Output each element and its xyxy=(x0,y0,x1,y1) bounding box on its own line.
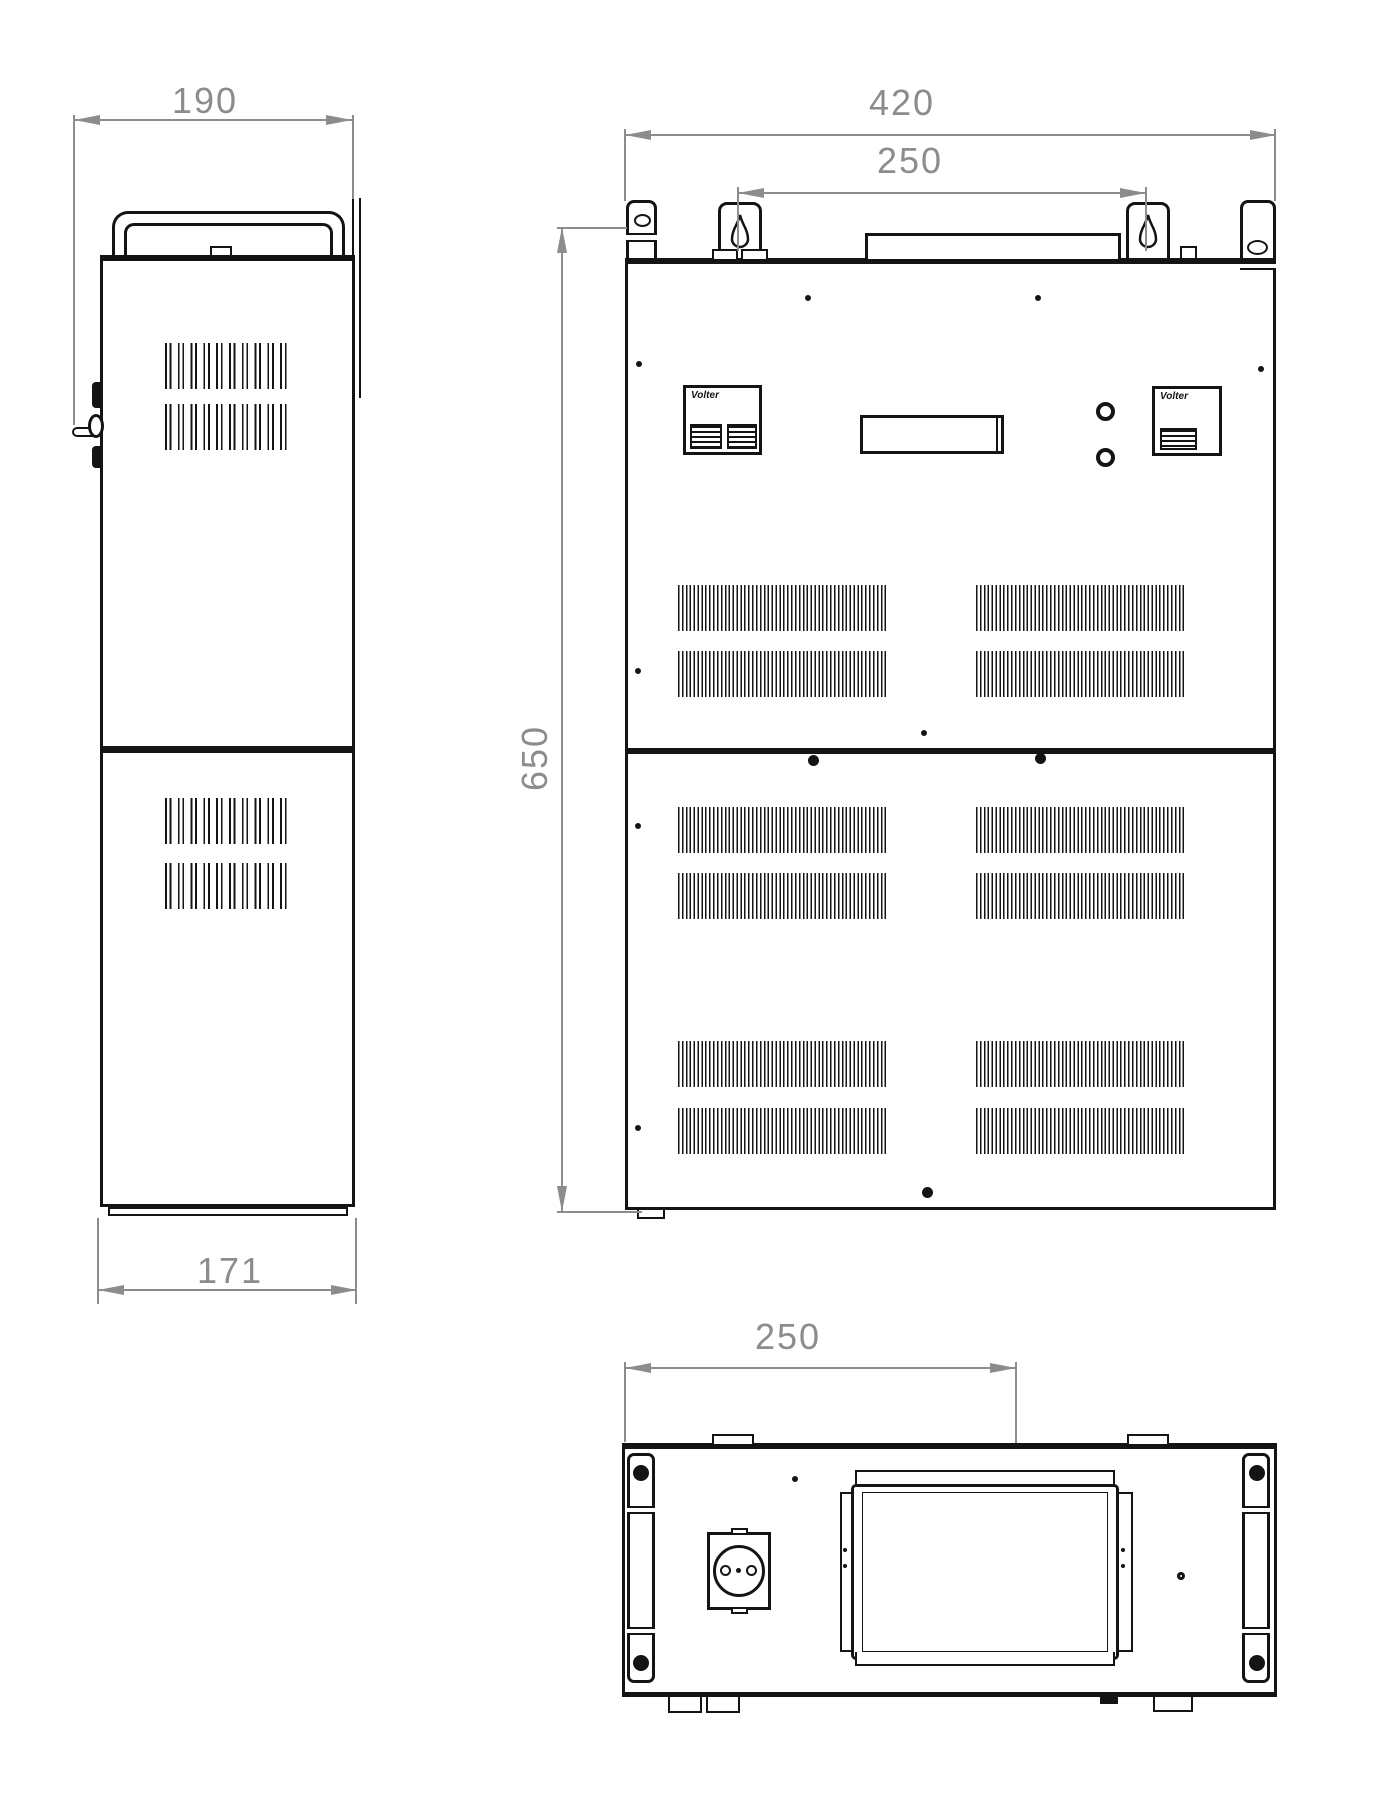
brand-logo: Volter xyxy=(691,390,719,401)
dim-420-ext-left xyxy=(624,129,626,201)
arrow-left-icon xyxy=(625,1363,651,1373)
vent-grid xyxy=(976,585,1186,631)
arrow-left-icon xyxy=(74,115,100,125)
brand-logo: Volter xyxy=(1160,391,1188,402)
screw-icon xyxy=(1035,295,1041,301)
dim-250-bottom-label: 250 xyxy=(728,1316,848,1358)
vent-grid xyxy=(165,343,293,389)
dim-250-top-label: 250 xyxy=(850,140,970,182)
arrow-right-icon xyxy=(331,1285,357,1295)
socket-tab xyxy=(731,1528,748,1535)
dim-190-ext-right xyxy=(352,115,354,199)
arrow-left-icon xyxy=(98,1285,124,1295)
screw-icon xyxy=(635,823,641,829)
socket-tab xyxy=(731,1607,748,1614)
rail-joint xyxy=(1242,1627,1270,1635)
dim-171-label: 171 xyxy=(170,1250,290,1292)
arrow-left-icon xyxy=(738,188,764,198)
dim-650-line xyxy=(561,227,563,1212)
terminal-knob xyxy=(92,446,101,468)
side-case xyxy=(100,255,355,1207)
flange-hole xyxy=(843,1548,847,1552)
dim-250-bottom-ext-left xyxy=(624,1362,626,1442)
socket-pin-hole xyxy=(746,1565,757,1576)
label-hatch-block xyxy=(727,424,757,449)
front-divider xyxy=(625,748,1276,754)
vent-grid xyxy=(678,1108,888,1154)
bottom-foot xyxy=(706,1697,740,1713)
terminal-socket xyxy=(88,414,104,438)
bottom-foot xyxy=(1153,1697,1193,1712)
control-button xyxy=(1096,448,1115,467)
bracket-bar xyxy=(626,233,657,242)
vent-grid xyxy=(678,1041,888,1087)
socket-center-dot xyxy=(736,1568,741,1573)
screw-icon xyxy=(633,1655,649,1671)
flange-hole xyxy=(1121,1564,1125,1568)
vent-grid xyxy=(976,651,1186,697)
keyhole-icon xyxy=(729,213,751,251)
keyhole-icon xyxy=(1137,213,1159,251)
bottom-foot xyxy=(668,1697,702,1713)
dim-420-ext-right xyxy=(1274,129,1276,201)
connection-box-lid-line xyxy=(862,1492,1108,1652)
screw-icon xyxy=(922,1187,933,1198)
bracket-foot xyxy=(712,249,738,259)
socket-pin-hole xyxy=(720,1565,731,1576)
screw-icon xyxy=(635,668,641,674)
terminal-knob xyxy=(92,382,101,408)
arrow-right-icon xyxy=(1120,188,1146,198)
label-hatch-block xyxy=(1160,428,1197,450)
screw-icon xyxy=(808,755,819,766)
arrow-down-icon xyxy=(557,1186,567,1212)
control-button xyxy=(1096,402,1115,421)
arrow-right-icon xyxy=(1250,130,1276,140)
vent-grid xyxy=(976,1108,1186,1154)
side-divider xyxy=(100,746,355,753)
screw-icon xyxy=(1249,1655,1265,1671)
bottom-nub xyxy=(1100,1696,1118,1704)
vent-grid xyxy=(678,651,888,697)
vent-grid xyxy=(678,873,888,919)
flange-hole xyxy=(1121,1548,1125,1552)
screw-icon xyxy=(921,730,927,736)
technical-drawing: 190 171 xyxy=(0,0,1391,1800)
dim-650-ext-top xyxy=(557,227,627,229)
arrow-up-icon xyxy=(557,227,567,253)
screw-icon xyxy=(1035,753,1046,764)
dim-190-label: 190 xyxy=(150,80,260,122)
screw-icon xyxy=(635,1125,641,1131)
dim-250-top-ext-left xyxy=(737,187,739,251)
arrow-left-icon xyxy=(625,130,651,140)
dim-650-ext-bottom xyxy=(557,1211,642,1213)
screw-icon xyxy=(792,1476,798,1482)
lcd-display xyxy=(860,415,1004,454)
bracket-foot xyxy=(741,249,768,259)
bracket-bar xyxy=(1240,262,1276,270)
rail-joint xyxy=(627,1506,655,1514)
dim-650-label: 650 xyxy=(514,698,556,818)
handle-rail-right xyxy=(1242,1453,1270,1683)
top-tab xyxy=(712,1434,754,1444)
bracket-hole xyxy=(1247,240,1268,255)
small-tab xyxy=(1180,246,1197,258)
screw-icon xyxy=(805,295,811,301)
rail-joint xyxy=(1242,1506,1270,1514)
dim-190-ext-left xyxy=(73,115,75,425)
dim-250-top-ext-right xyxy=(1145,187,1147,251)
arrow-right-icon xyxy=(990,1363,1016,1373)
dim-420-label: 420 xyxy=(842,82,962,124)
screw-icon xyxy=(636,361,642,367)
dim-250-top-line xyxy=(738,192,1146,194)
vent-grid xyxy=(678,585,888,631)
screw-icon xyxy=(1258,366,1264,372)
vent-grid xyxy=(165,863,293,909)
vent-grid xyxy=(976,807,1186,853)
dim-190-line xyxy=(74,119,352,121)
screw-icon xyxy=(633,1465,649,1481)
vent-grid xyxy=(976,873,1186,919)
corner-bracket-left xyxy=(626,200,657,258)
connection-box-bottom-plate xyxy=(855,1652,1115,1666)
vent-grid xyxy=(976,1041,1186,1087)
vent-grid xyxy=(678,807,888,853)
dim-420-line xyxy=(625,134,1276,136)
flange-hole xyxy=(843,1564,847,1568)
rear-top-strip xyxy=(865,233,1121,259)
connection-box-flange-right xyxy=(1117,1492,1133,1652)
connection-box-flange-left xyxy=(840,1492,853,1652)
arrow-right-icon xyxy=(326,115,352,125)
bracket-hole xyxy=(634,214,651,227)
label-hatch-block xyxy=(690,424,722,449)
base-strip xyxy=(108,1207,348,1216)
display-edge-line xyxy=(996,418,998,451)
handle-rail-left xyxy=(627,1453,655,1683)
top-tab xyxy=(1127,1434,1169,1444)
vent-grid xyxy=(165,404,293,450)
dim-250-bottom-line xyxy=(625,1367,1016,1369)
rail-joint xyxy=(627,1627,655,1635)
vent-grid xyxy=(165,798,293,844)
cable-hole xyxy=(1177,1572,1185,1580)
screw-icon xyxy=(1249,1465,1265,1481)
